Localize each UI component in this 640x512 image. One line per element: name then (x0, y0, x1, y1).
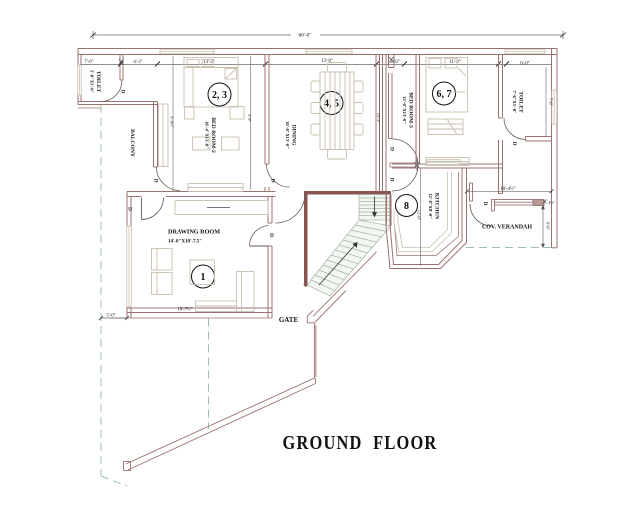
svg-text:13'-2": 13'-2" (376, 113, 381, 124)
svg-text:D: D (120, 90, 126, 94)
svg-text:TOILET: TOILET (95, 71, 101, 93)
svg-text:6, 7: 6, 7 (437, 89, 452, 100)
svg-text:D: D (268, 233, 274, 237)
svg-text:2, 3: 2, 3 (212, 90, 227, 101)
svg-text:D: D (389, 178, 395, 182)
svg-text:5'-0": 5'-0" (106, 314, 115, 319)
svg-text:13'-2": 13'-2" (203, 60, 215, 65)
svg-text:BED ROOM-3: BED ROOM-3 (408, 92, 414, 128)
svg-text:4, 5: 4, 5 (324, 99, 339, 110)
svg-text:10'-4½": 10'-4½" (500, 187, 515, 192)
svg-text:7'-6": 7'-6" (84, 60, 93, 65)
svg-text:7'-0": 7'-0" (549, 98, 554, 107)
svg-text:D: D (482, 202, 488, 206)
svg-text:60'-0": 60'-0" (298, 33, 311, 39)
svg-text:3'-9": 3'-9" (247, 114, 252, 123)
svg-text:4'-3": 4'-3" (133, 60, 142, 65)
svg-text:7'-6"X5'-0": 7'-6"X5'-0" (512, 90, 517, 114)
svg-text:BALCONY: BALCONY (129, 129, 135, 157)
svg-text:BED ROOM-2: BED ROOM-2 (210, 117, 216, 153)
svg-text:D: D (270, 179, 276, 183)
svg-text:8: 8 (404, 201, 409, 212)
svg-text:COV. VERANDAH: COV. VERANDAH (482, 225, 532, 231)
svg-text:1: 1 (201, 272, 206, 283)
svg-text:13'-0": 13'-0" (321, 59, 333, 64)
svg-text:16'-4"X13'-0": 16'-4"X13'-0" (205, 121, 210, 149)
svg-text:KITCHEN: KITCHEN (434, 193, 440, 219)
svg-text:4½": 4½" (549, 201, 556, 205)
svg-text:D: D (153, 179, 159, 183)
svg-text:12'-0"X8'-0": 12'-0"X8'-0" (428, 193, 433, 219)
svg-text:11'-0": 11'-0" (449, 60, 460, 65)
svg-text:6'-0": 6'-0" (520, 62, 529, 67)
svg-text:DINING: DINING (291, 125, 297, 146)
svg-text:TOILET: TOILET (518, 91, 524, 113)
svg-text:5'-0"X3'-0": 5'-0"X3'-0" (90, 70, 95, 94)
svg-text:DRAWING ROOM: DRAWING ROOM (168, 229, 220, 236)
svg-text:GROUND FLOOR: GROUND FLOOR (283, 431, 438, 454)
svg-text:12'-0": 12'-0" (417, 210, 422, 221)
svg-text:14'-0"X10'-7.5": 14'-0"X10'-7.5" (168, 240, 202, 245)
svg-text:10'-7½": 10'-7½" (177, 308, 192, 313)
svg-text:13'-0"X13'-0": 13'-0"X13'-0" (402, 96, 407, 124)
svg-text:GATE: GATE (279, 316, 299, 324)
svg-text:D: D (389, 147, 395, 151)
svg-text:9'-0": 9'-0" (546, 222, 551, 231)
svg-text:10'-0"X13'-0": 10'-0"X13'-0" (285, 121, 290, 149)
svg-text:D: D (511, 142, 517, 146)
svg-text:3'-9½": 3'-9½" (170, 116, 175, 128)
